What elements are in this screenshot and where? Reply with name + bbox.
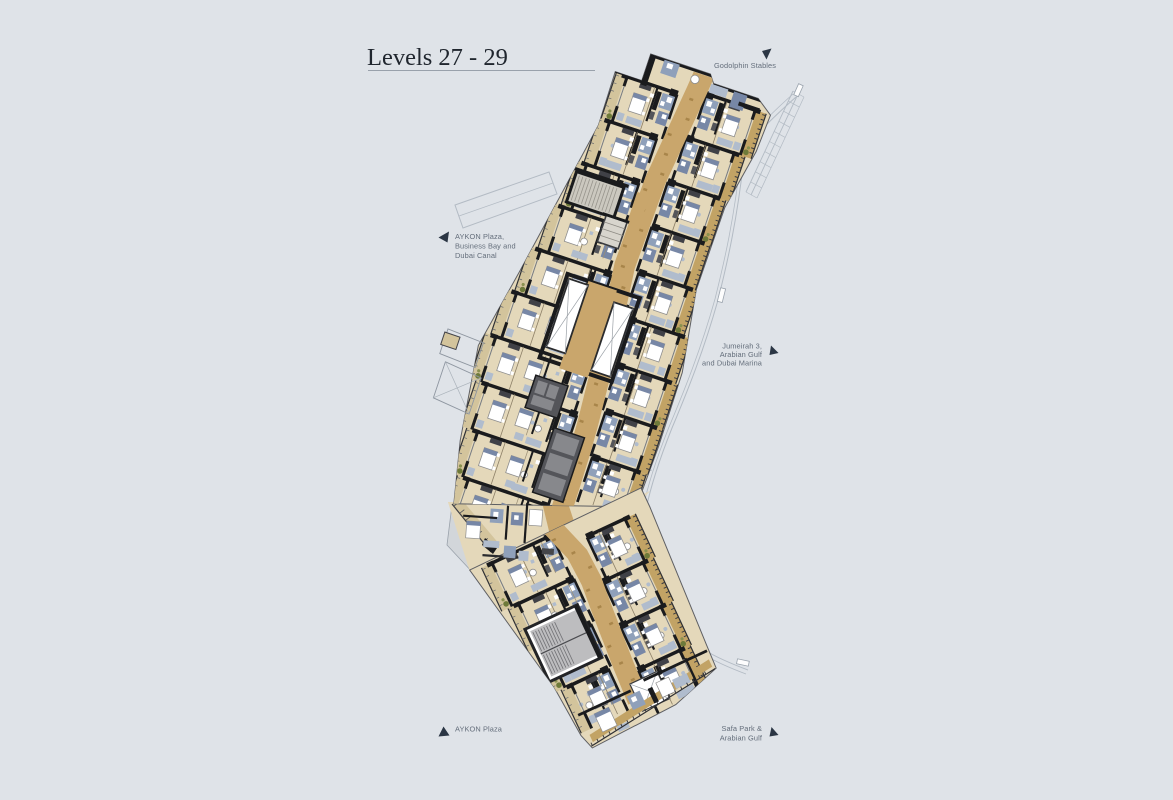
svg-text:Godolphin Stables: Godolphin Stables: [714, 61, 776, 70]
svg-text:Business Bay and: Business Bay and: [455, 242, 516, 251]
svg-text:and Dubai Marina: and Dubai Marina: [702, 359, 763, 368]
svg-text:Arabian Gulf: Arabian Gulf: [720, 734, 763, 743]
svg-text:AYKON Plaza,: AYKON Plaza,: [455, 232, 504, 241]
svg-text:AYKON Plaza: AYKON Plaza: [455, 725, 503, 734]
svg-text:Safa Park &: Safa Park &: [721, 724, 762, 733]
svg-text:Dubai Canal: Dubai Canal: [455, 251, 497, 260]
